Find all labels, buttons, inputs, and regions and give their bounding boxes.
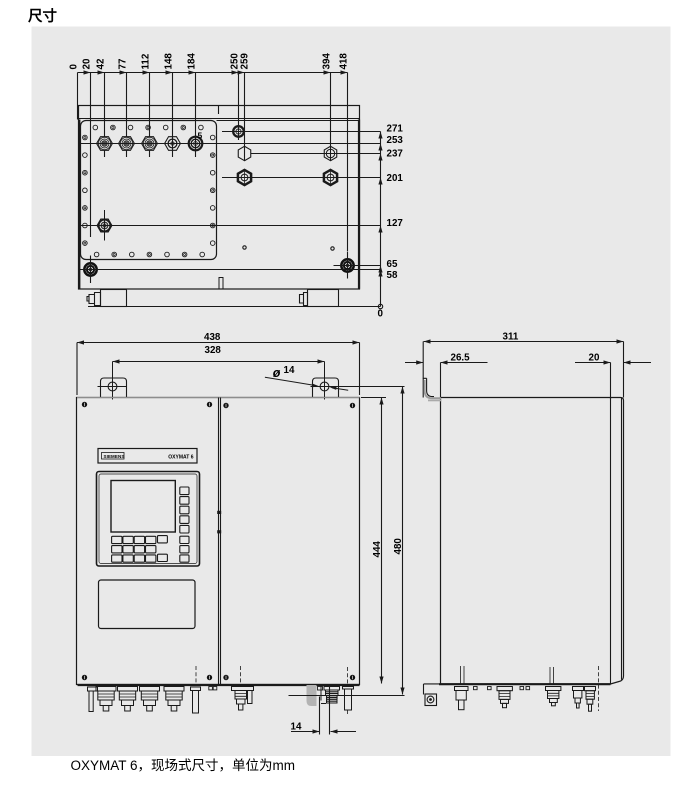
svg-text:237: 237 <box>387 149 404 160</box>
svg-text:253: 253 <box>387 135 404 146</box>
svg-text:14: 14 <box>291 722 302 733</box>
svg-text:148: 148 <box>163 53 174 70</box>
svg-text:尺寸: 尺寸 <box>28 7 57 25</box>
svg-text:77: 77 <box>117 58 128 69</box>
svg-text:OXYMAT 6，现场式尺寸，单位为mm: OXYMAT 6，现场式尺寸，单位为mm <box>71 758 296 773</box>
svg-text:438: 438 <box>204 332 221 343</box>
svg-text:184: 184 <box>186 53 197 70</box>
svg-text:328: 328 <box>205 345 222 356</box>
svg-text:OXYMAT 6: OXYMAT 6 <box>168 455 193 461</box>
svg-text:65: 65 <box>387 259 398 270</box>
svg-text:394: 394 <box>321 53 332 70</box>
svg-text:5: 5 <box>198 131 203 141</box>
svg-text:259: 259 <box>240 53 251 70</box>
svg-text:20: 20 <box>81 58 92 69</box>
svg-text:42: 42 <box>95 58 106 69</box>
svg-text:127: 127 <box>387 218 404 229</box>
svg-text:201: 201 <box>387 173 404 184</box>
svg-text:112: 112 <box>140 53 151 69</box>
svg-text:418: 418 <box>338 53 349 70</box>
svg-text:SIEMENS: SIEMENS <box>104 454 125 459</box>
svg-text:480: 480 <box>393 538 404 555</box>
svg-text:26.5: 26.5 <box>451 353 471 364</box>
svg-text:0: 0 <box>68 64 79 70</box>
svg-text:0: 0 <box>378 309 384 320</box>
svg-text:58: 58 <box>387 270 398 281</box>
svg-text:444: 444 <box>372 541 383 558</box>
svg-text:20: 20 <box>589 353 600 364</box>
svg-text:271: 271 <box>387 123 404 134</box>
svg-text:311: 311 <box>503 332 519 343</box>
